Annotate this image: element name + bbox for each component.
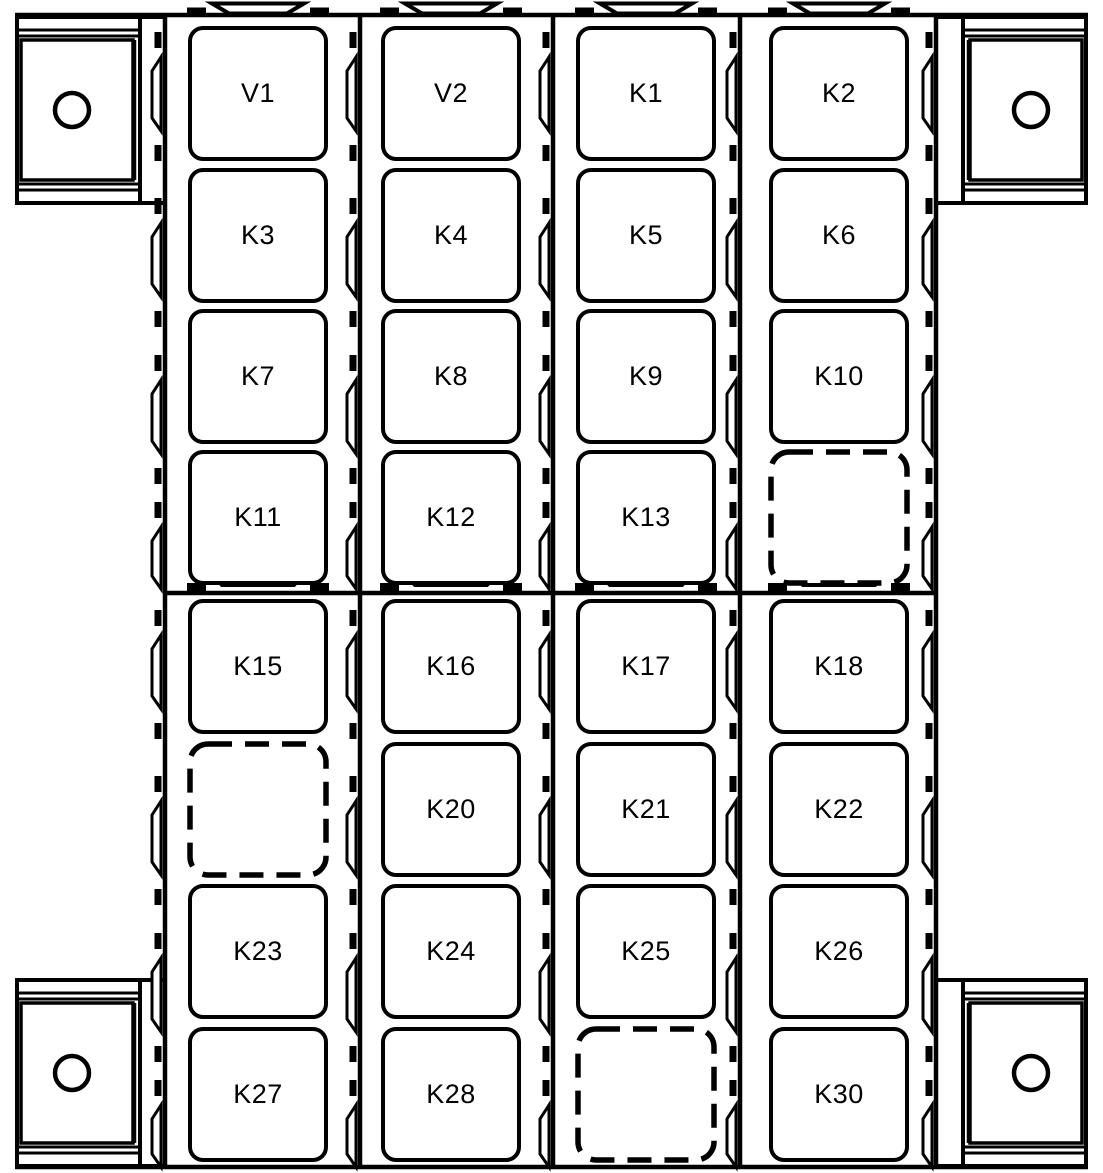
relay-slot-K12: K12 xyxy=(383,452,519,583)
relay-slot-K15: K15 xyxy=(190,601,326,732)
relay-slot-K23: K23 xyxy=(190,886,326,1017)
relay-slot-label: K17 xyxy=(621,653,671,680)
relay-slot-K17: K17 xyxy=(578,601,714,732)
relay-slot-K20: K20 xyxy=(383,744,519,875)
relay-slot-label: K28 xyxy=(426,1081,476,1108)
relay-slot-K27: K27 xyxy=(190,1029,326,1160)
relay-slot-K13: K13 xyxy=(578,452,714,583)
relay-slot-K30: K30 xyxy=(771,1029,907,1160)
relay-slot-label: K22 xyxy=(814,796,864,823)
relay-slot-K1: K1 xyxy=(578,28,714,159)
relay-slot-label: K12 xyxy=(426,504,476,531)
relay-slot-K24: K24 xyxy=(383,886,519,1017)
relay-slot-K22: K22 xyxy=(771,744,907,875)
relay-slot-grid: V1 V2 K1 K2 K3 K4 K5 K6 K7 K8 xyxy=(0,0,1103,1173)
relay-slot-label: V1 xyxy=(241,80,275,107)
relay-slot-label: K6 xyxy=(822,222,856,249)
relay-box-diagram: V1 V2 K1 K2 K3 K4 K5 K6 K7 K8 xyxy=(0,0,1103,1173)
relay-slot-label: K9 xyxy=(629,363,663,390)
relay-slot-label: K1 xyxy=(629,80,663,107)
relay-slot-label: K3 xyxy=(241,222,275,249)
relay-slot-label: K8 xyxy=(434,363,468,390)
relay-slot-K6: K6 xyxy=(771,170,907,301)
relay-slot-K4: K4 xyxy=(383,170,519,301)
relay-slot-empty xyxy=(578,1029,714,1160)
relay-slot-empty xyxy=(771,452,907,583)
relay-slot-label: K5 xyxy=(629,222,663,249)
relay-slot-label: K20 xyxy=(426,796,476,823)
relay-slot-K3: K3 xyxy=(190,170,326,301)
relay-slot-label: K30 xyxy=(814,1081,864,1108)
relay-slot-V1: V1 xyxy=(190,28,326,159)
relay-slot-K26: K26 xyxy=(771,886,907,1017)
relay-slot-label: K2 xyxy=(822,80,856,107)
relay-slot-label: K27 xyxy=(233,1081,283,1108)
relay-slot-V2: V2 xyxy=(383,28,519,159)
relay-slot-label: K10 xyxy=(814,363,864,390)
relay-slot-label: K13 xyxy=(621,504,671,531)
relay-slot-K16: K16 xyxy=(383,601,519,732)
relay-slot-label: K23 xyxy=(233,938,283,965)
relay-slot-label: K15 xyxy=(233,653,283,680)
relay-slot-label: K24 xyxy=(426,938,476,965)
relay-slot-K7: K7 xyxy=(190,311,326,442)
relay-slot-label: K7 xyxy=(241,363,275,390)
relay-slot-empty xyxy=(190,744,326,875)
relay-slot-K18: K18 xyxy=(771,601,907,732)
relay-slot-label: K21 xyxy=(621,796,671,823)
relay-slot-K25: K25 xyxy=(578,886,714,1017)
relay-slot-K10: K10 xyxy=(771,311,907,442)
relay-slot-K9: K9 xyxy=(578,311,714,442)
relay-slot-label: K4 xyxy=(434,222,468,249)
relay-slot-K8: K8 xyxy=(383,311,519,442)
relay-slot-K11: K11 xyxy=(190,452,326,583)
relay-slot-K21: K21 xyxy=(578,744,714,875)
relay-slot-label: K18 xyxy=(814,653,864,680)
relay-slot-label: K16 xyxy=(426,653,476,680)
relay-slot-label: V2 xyxy=(434,80,468,107)
relay-slot-K28: K28 xyxy=(383,1029,519,1160)
relay-slot-label: K25 xyxy=(621,938,671,965)
relay-slot-K5: K5 xyxy=(578,170,714,301)
relay-slot-label: K26 xyxy=(814,938,864,965)
relay-slot-K2: K2 xyxy=(771,28,907,159)
relay-slot-label: K11 xyxy=(234,504,282,531)
